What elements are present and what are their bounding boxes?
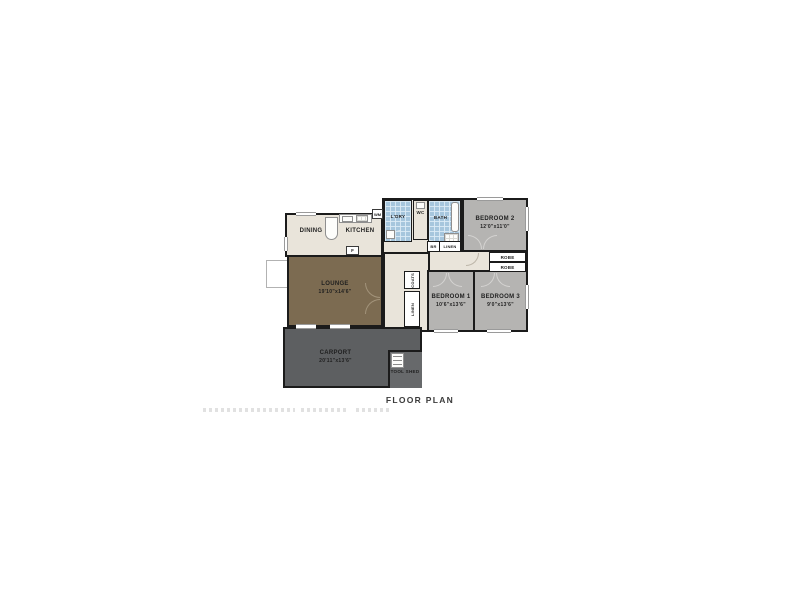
wc-label-text: WC bbox=[416, 210, 424, 215]
toolshed-label-text: TOOL SHED bbox=[391, 369, 420, 374]
toilet bbox=[416, 202, 425, 209]
wc-label: WC bbox=[413, 210, 428, 216]
robe-top-label: ROBE bbox=[501, 255, 515, 260]
bedroom2-top-window bbox=[477, 197, 503, 201]
bedroom1-dims: 10'6"x13'6" bbox=[427, 302, 475, 309]
bedroom3-label: BEDROOM 3 9'0"x13'6" bbox=[473, 294, 528, 308]
truncated-fine-print-2 bbox=[301, 408, 346, 412]
shed-fixture-fineprint bbox=[393, 356, 402, 365]
kitchen-label-text: KITCHEN bbox=[346, 228, 375, 234]
bedroom2-label: BEDROOM 2 12'0"x11'0" bbox=[462, 216, 528, 230]
carport-dims: 20'11"x13'6" bbox=[283, 358, 388, 365]
dining-top-window bbox=[296, 212, 316, 216]
bedroom3-right-window bbox=[525, 285, 529, 309]
lounge-bottom-window-2 bbox=[330, 324, 350, 329]
bedroom2-dims: 12'0"x11'0" bbox=[462, 224, 528, 231]
bedroom2-right-window bbox=[525, 207, 529, 231]
dining-left-window bbox=[284, 237, 288, 251]
laundry-label-text: L'DRY bbox=[391, 214, 406, 219]
bath-label: BATH bbox=[428, 215, 453, 221]
bedroom3-bottom-window bbox=[487, 329, 511, 333]
bath-label-text: BATH bbox=[434, 215, 447, 220]
robe-bottom-closet: ROBE bbox=[489, 262, 526, 272]
bedroom1-label-text: BEDROOM 1 bbox=[431, 294, 470, 300]
toolshed-label: TOOL SHED bbox=[388, 369, 422, 374]
laundry-tub bbox=[386, 230, 395, 239]
fridge-box: F bbox=[346, 246, 359, 255]
coats-label: COATS bbox=[410, 273, 415, 288]
washing-machine-box: WM bbox=[372, 209, 383, 219]
linen-hall-closet: LINEN bbox=[404, 291, 420, 327]
lounge-dims: 19'10"x14'6" bbox=[287, 289, 383, 296]
bedroom3-label-text: BEDROOM 3 bbox=[481, 294, 520, 300]
dining-label: DINING bbox=[285, 228, 337, 236]
lounge-label: LOUNGE 19'10"x14'6" bbox=[287, 281, 383, 295]
kitchen-sink bbox=[342, 216, 353, 222]
carport-label: CARPORT 20'11"x13'6" bbox=[283, 350, 388, 364]
bedroom3-dims: 9'0"x13'6" bbox=[473, 302, 528, 309]
laundry-label: L'DRY bbox=[384, 214, 412, 220]
bedroom1-label: BEDROOM 1 10'6"x13'6" bbox=[427, 294, 475, 308]
washer-label: WM bbox=[374, 212, 381, 217]
lounge-label-text: LOUNGE bbox=[321, 281, 348, 287]
truncated-fine-print-1 bbox=[203, 408, 295, 412]
bedroom2-label-text: BEDROOM 2 bbox=[475, 216, 514, 222]
coats-cupboard: COATS bbox=[404, 271, 420, 289]
carport-label-text: CARPORT bbox=[320, 350, 352, 356]
truncated-fine-print-3 bbox=[356, 408, 392, 412]
linen-bath-closet: LINEN bbox=[439, 241, 461, 252]
robe-top-closet: ROBE bbox=[489, 252, 526, 262]
fridge-label: F bbox=[351, 248, 354, 253]
shed-fixture bbox=[391, 353, 404, 368]
linen-bath-label: LINEN bbox=[444, 244, 457, 249]
floor-plan: F WM ROBE ROBE BR LINEN COATS LINEN DINI… bbox=[0, 0, 800, 600]
lounge-bottom-window-1 bbox=[296, 324, 316, 329]
kitchen-label: KITCHEN bbox=[337, 228, 383, 236]
bay-window bbox=[266, 260, 288, 288]
bedroom1-bottom-window bbox=[434, 329, 458, 333]
robe-bottom-label: ROBE bbox=[501, 265, 515, 270]
floor-plan-caption: FLOOR PLAN bbox=[355, 395, 485, 405]
br-label: BR bbox=[430, 244, 436, 249]
cooktop bbox=[356, 215, 368, 222]
dining-label-text: DINING bbox=[300, 228, 323, 234]
linen-hall-label: LINEN bbox=[410, 303, 415, 316]
floor-plan-caption-text: FLOOR PLAN bbox=[386, 395, 454, 405]
